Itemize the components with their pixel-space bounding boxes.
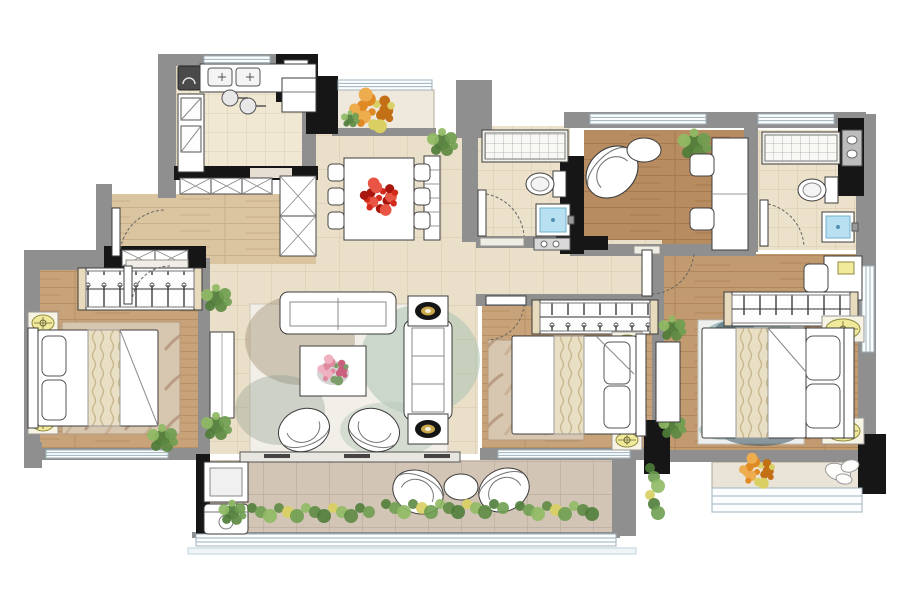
midbath-sink-faucet (568, 216, 574, 224)
mid-bedroom-door-leaf (486, 296, 526, 305)
balcony-hedge-shrub (397, 505, 411, 519)
left-bedroom-wardrobe (78, 268, 202, 310)
master-balcony-flowers-bloom (768, 474, 774, 480)
shoe-cabinet (180, 178, 211, 194)
balcony-hedge-shrub (585, 507, 599, 521)
dining-centerpiece-flowers-bloom (366, 204, 372, 210)
flowerbed-flowers-bloom (373, 119, 387, 133)
dining-chair (328, 212, 344, 229)
midbath-shower-grid (485, 133, 565, 159)
midbath-toilet (526, 171, 566, 197)
midbath-toilet-seat (531, 177, 549, 191)
sofa-chaise (404, 320, 452, 420)
wall (612, 450, 636, 536)
dining-plant-leaf (450, 142, 458, 150)
balcony-table (444, 474, 478, 500)
master-balcony-flowers-bloom (747, 453, 758, 464)
left-bedroom-plant-leaf (151, 441, 161, 451)
flowerbed-grass-leaf (355, 119, 360, 124)
midbath-door-leaf (478, 190, 486, 236)
master-plant-leaf (662, 429, 671, 438)
bed-headboard (636, 334, 646, 436)
coffee-table-flowers-bloom (342, 373, 347, 378)
shelf-dish (847, 150, 857, 158)
living-plant-leaf (201, 417, 213, 429)
pillow (806, 384, 840, 428)
rightbath-toilet-tank (825, 177, 838, 203)
balcony-plant-leaf (219, 504, 230, 515)
shoe-cabinet (211, 178, 242, 194)
dining-chair (328, 164, 344, 181)
wall (652, 252, 664, 298)
midbath-shower (482, 130, 568, 162)
shelf-dish (847, 136, 857, 144)
dining-plant-leaf (431, 145, 441, 155)
balcony-hedge-shrub (497, 502, 509, 514)
mid-bedroom-wardrobe (532, 300, 658, 334)
living-plant-leaf (212, 412, 220, 420)
flowerbed-grass-leaf (343, 121, 349, 127)
balcony-plant-leaf (222, 515, 231, 524)
study-plant-leaf (678, 134, 691, 147)
pantry-cabinet (280, 216, 316, 256)
left-bedroom-wardrobe-panel (194, 268, 202, 310)
mid-bedroom-wardrobe-panel (650, 300, 658, 334)
balcony-hedge-shrub (263, 509, 277, 523)
balcony-hedge-shrub (363, 506, 375, 518)
left-bedroom-plant-leaf (158, 424, 166, 432)
floor-plan-page (0, 0, 900, 600)
master-balcony-flowers-bloom (745, 478, 751, 484)
shoe-cabinet (242, 178, 272, 194)
desk-chair (690, 154, 714, 176)
coffee-table-flowers-bloom (324, 354, 334, 364)
dining-plant-leaf (427, 133, 439, 145)
cabinet-knob (553, 241, 559, 247)
flowerbed-flowers-bloom (359, 88, 373, 102)
flowerbed-window-frame (338, 80, 432, 90)
master-plant-leaf (662, 331, 671, 340)
pillow (42, 336, 66, 376)
rightbath-shower-grid (765, 135, 837, 161)
balcony-window (196, 534, 616, 546)
bath-window (758, 114, 834, 124)
pillow (604, 386, 630, 428)
study-window-frame (590, 114, 706, 124)
coffee-table-flowers-bloom (317, 365, 324, 372)
dining-chair (414, 188, 430, 205)
side-table-tray (408, 414, 448, 444)
master-balcony-window-frame (712, 488, 862, 512)
midbath-toilet-tank (553, 171, 566, 197)
master-door-leaf (642, 250, 652, 296)
balcony-hedge-shrub (344, 509, 358, 523)
study-ottoman (627, 138, 661, 162)
mid-bed-blanket (554, 336, 584, 434)
master-plant-leaf (679, 426, 686, 433)
living-plant-leaf (201, 289, 213, 301)
flowerbed-grass-leaf (348, 110, 353, 115)
sliding-handle (344, 454, 370, 458)
bath-shelf (842, 130, 862, 166)
mid-bedroom-window (498, 450, 630, 458)
study-window (590, 114, 706, 124)
dining-centerpiece-flowers-bloom (360, 191, 369, 200)
desk-decor (838, 262, 854, 274)
balcony-hedge-corner-shrub (651, 506, 665, 520)
balcony-hedge-shrub (558, 507, 572, 521)
master-bed-blanket (736, 328, 768, 438)
rightbath-sink-faucet (852, 223, 858, 231)
dining-centerpiece-flowers-bloom (392, 189, 398, 195)
desk-chair (690, 208, 714, 230)
master-balcony-flowers-bloom (758, 478, 769, 489)
side-table-tray-center (425, 309, 431, 313)
coffee-table-flowers-bloom (334, 376, 344, 386)
dining-plant-leaf (438, 128, 446, 136)
master-balcony-flowers-bloom (739, 465, 748, 474)
wall (462, 124, 478, 242)
rightbath-door-leaf (760, 200, 768, 246)
side-table-tray (408, 296, 448, 326)
flowerbed-grass-leaf (341, 113, 348, 120)
rightbath-sink-drain (836, 225, 840, 229)
side-table-tray-center (425, 427, 431, 431)
living-plant-leaf (224, 426, 232, 434)
dining-centerpiece-flowers-bloom (390, 200, 396, 206)
left-bedroom-plant-leaf (170, 438, 178, 446)
wall (158, 54, 176, 198)
dining-chair (328, 188, 344, 205)
master-plant-leaf (668, 316, 675, 323)
left-bedroom-window-frame (46, 450, 168, 458)
flowerbed-flowers-bloom (387, 102, 395, 110)
balcony-hedge-shrub (531, 507, 545, 521)
left-bedroom-plant-leaf (147, 429, 159, 441)
bath-window-frame (758, 114, 834, 124)
master-balcony-flowers-bloom (769, 464, 775, 470)
rightbath-sink (822, 212, 858, 242)
balcony-hedge-shrub (317, 509, 331, 523)
door-sill (480, 238, 524, 246)
balcony-plant-leaf (228, 500, 235, 507)
living-plant-leaf (212, 284, 220, 292)
bath-cabinet (534, 238, 570, 250)
balcony-hedge-shrub (290, 509, 304, 523)
living-plant-leaf (205, 429, 215, 439)
study-plant-leaf (703, 144, 712, 153)
dining-centerpiece-flowers-bloom (380, 204, 392, 216)
dining-chair (414, 164, 430, 181)
balcony-hedge-shrub (478, 505, 492, 519)
midbath-sink-drain (551, 218, 555, 222)
master-wardrobe-panel (724, 292, 732, 326)
bed-headboard (28, 328, 38, 428)
balcony-plant-leaf (239, 512, 246, 519)
sliding-handle (264, 454, 290, 458)
coffee-table-flowers-bloom (343, 364, 348, 369)
flowerbed-flowers-bloom (386, 115, 394, 123)
master-balcony-window (712, 488, 862, 512)
pillow (806, 336, 840, 380)
stove-pot (222, 90, 238, 106)
door-sill (126, 260, 188, 268)
dining-centerpiece-flowers-bloom (368, 177, 380, 189)
balcony-hedge-corner-shrub (651, 479, 665, 493)
laundry-sink-basin (210, 468, 242, 496)
living-plant-leaf (224, 298, 232, 306)
living-plant-leaf (205, 301, 215, 311)
wall (660, 450, 864, 462)
balcony-sill (188, 548, 636, 554)
rightbath-shower (762, 132, 840, 164)
entry-door-leaf (112, 208, 120, 256)
left-bedroom-window (46, 450, 168, 458)
balcony-hedge-shrub (451, 505, 465, 519)
floor-plan (0, 0, 900, 600)
study-plant-leaf (690, 128, 699, 137)
left-bedroom-wardrobe-panel (78, 268, 86, 310)
pantry-cabinet (280, 176, 316, 216)
master-plant-leaf (679, 328, 686, 335)
fridge (282, 78, 316, 112)
sliding-handle (424, 454, 450, 458)
cabinet-knob (541, 241, 547, 247)
left-bedroom-door-leaf (124, 266, 132, 304)
master-plant-leaf (659, 320, 670, 331)
flowerbed-window (338, 80, 432, 90)
midbath-sink (536, 204, 574, 236)
dining-chair (414, 212, 430, 229)
balcony-hedge-shrub (424, 505, 438, 519)
pillow (42, 380, 66, 420)
bed-headboard (844, 328, 854, 438)
mid-bedroom-window-frame (498, 450, 630, 458)
left-bed-blanket (88, 330, 120, 426)
stove-pot (240, 98, 256, 114)
rightbath-toilet (798, 177, 838, 203)
desk-chair (804, 264, 828, 292)
coffee-table-flowers-bloom (323, 376, 328, 381)
master-console (656, 342, 680, 422)
balcony-window-frame (196, 534, 616, 546)
mid-bedroom-wardrobe-panel (532, 300, 540, 334)
rightbath-toilet-seat (803, 183, 821, 197)
